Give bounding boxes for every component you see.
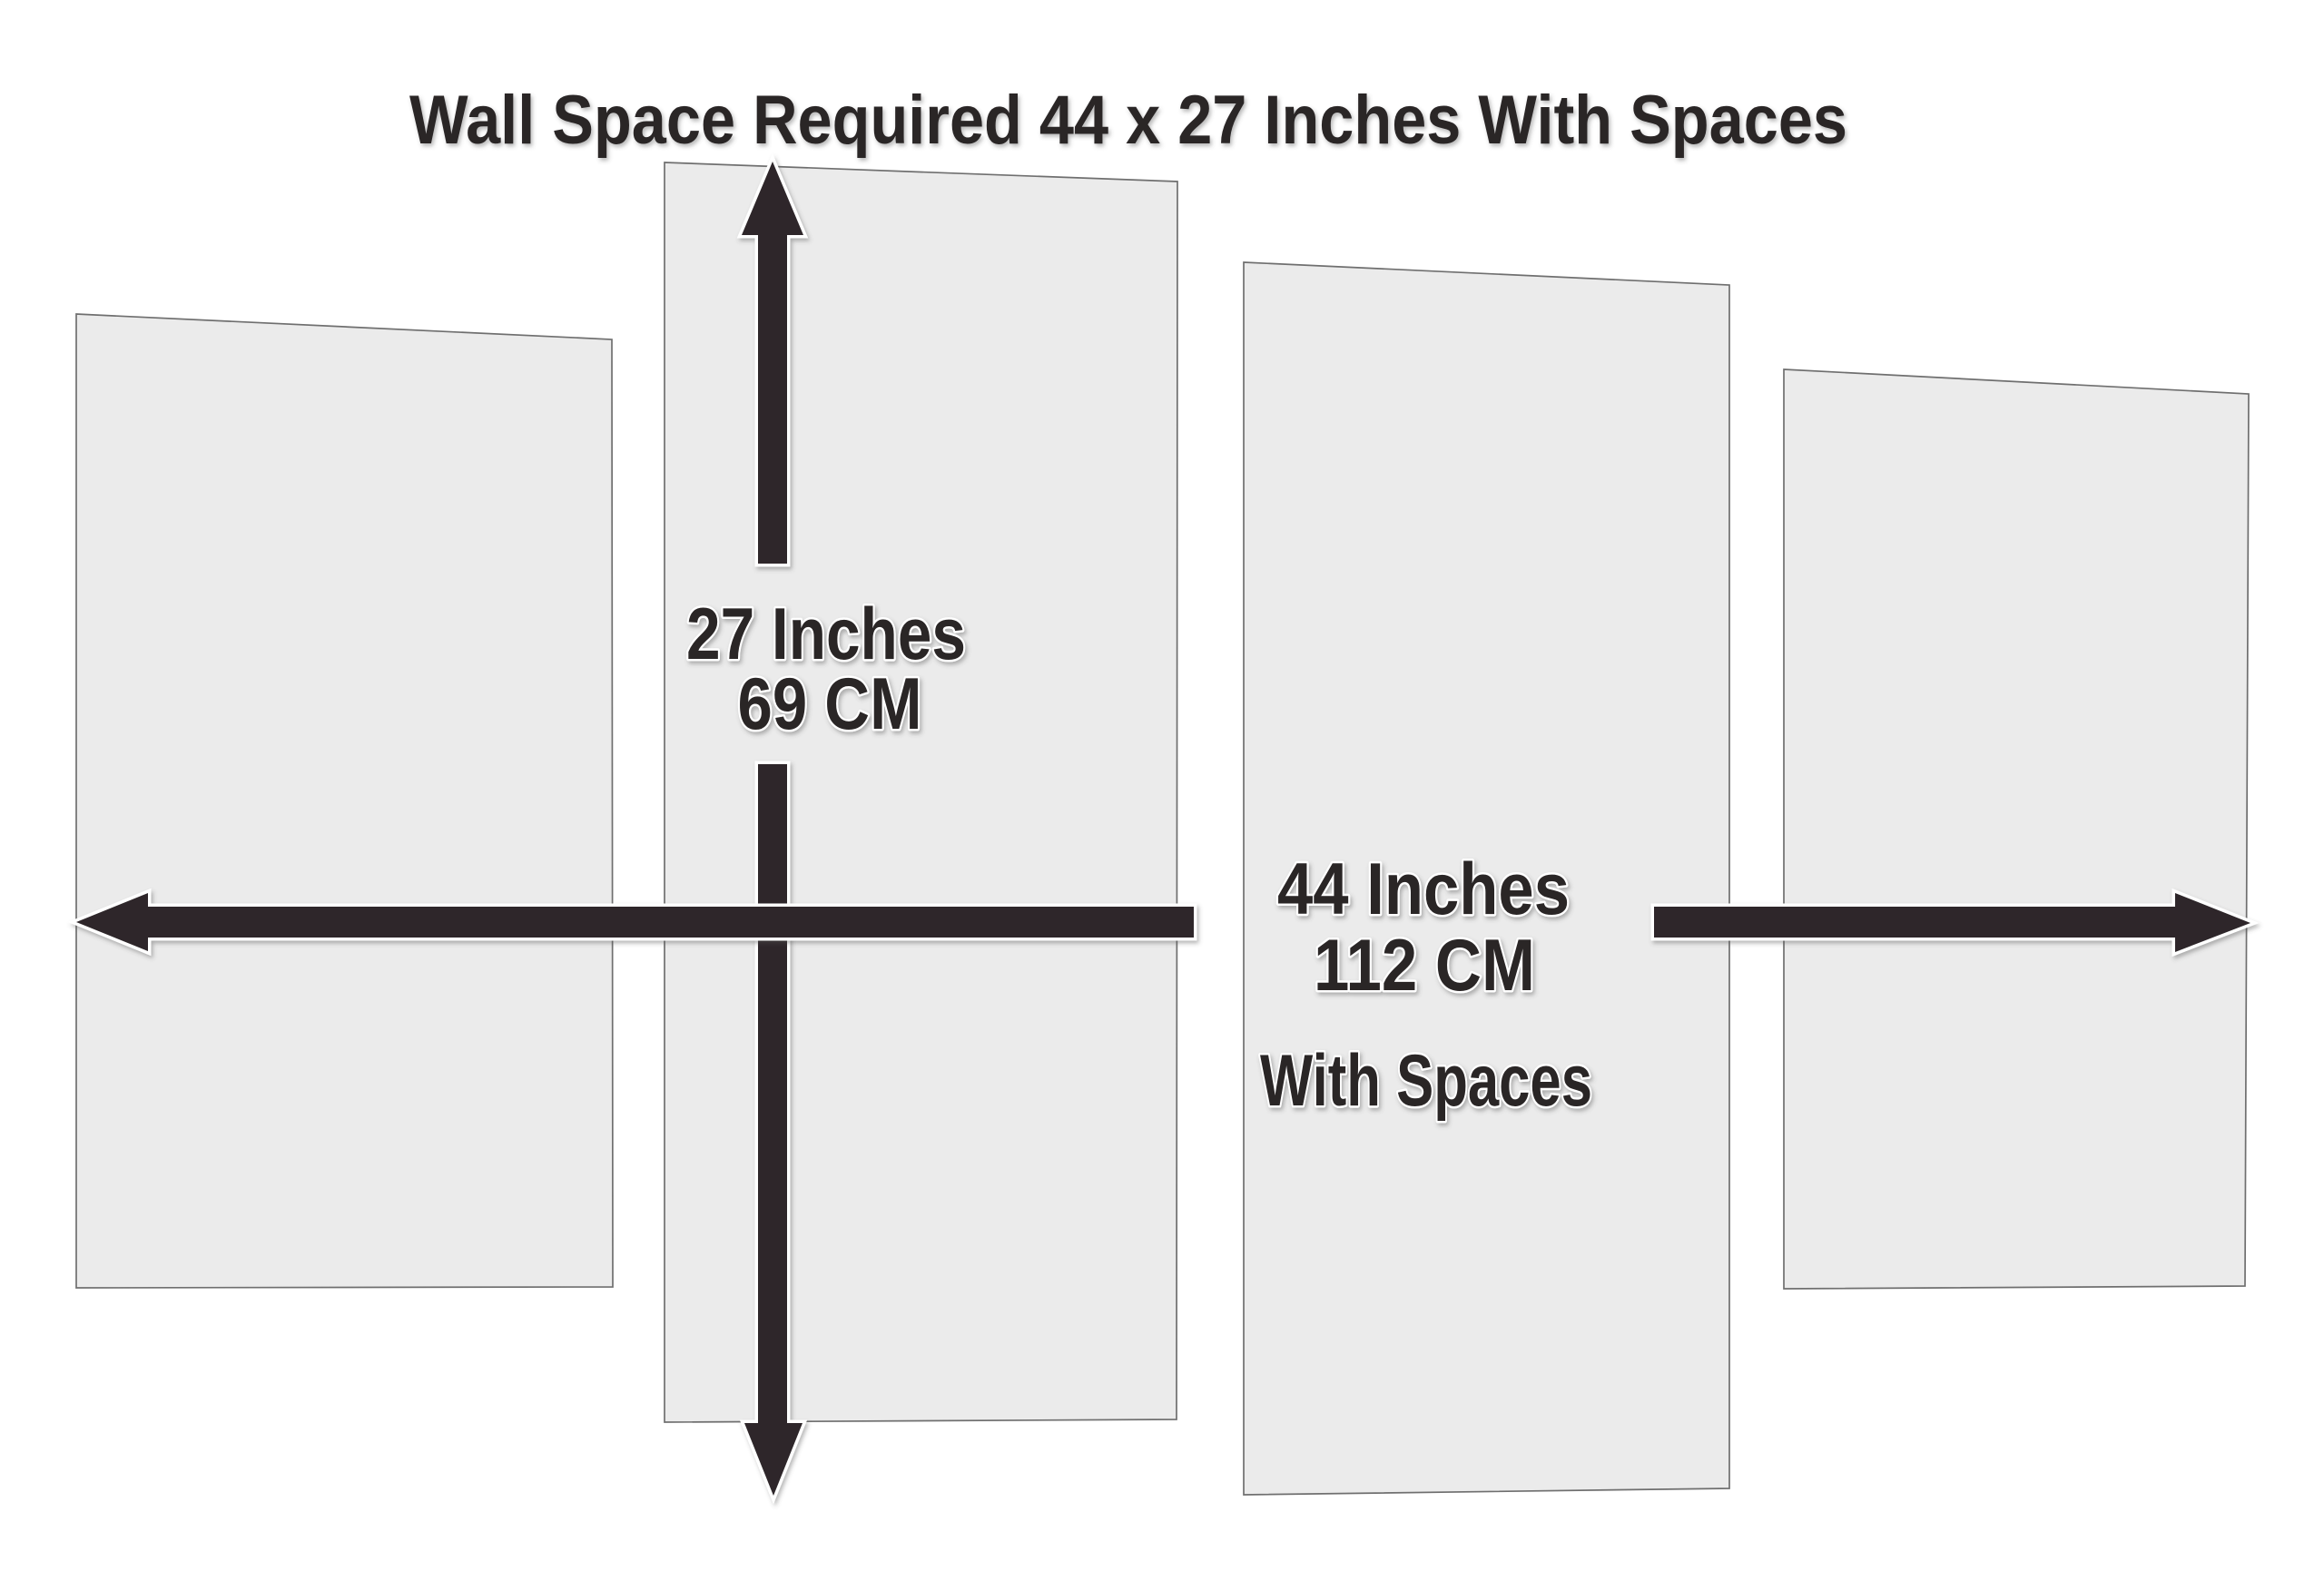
svg-text:69 CM: 69 CM (738, 663, 922, 745)
svg-text:With Spaces: With Spaces (1260, 1040, 1592, 1122)
svg-text:44 Inches: 44 Inches (1277, 849, 1570, 930)
svg-text:112 CM: 112 CM (1314, 925, 1535, 1006)
svg-text:Wall Space Required 44 x 27 In: Wall Space Required 44 x 27 Inches With … (409, 82, 1847, 159)
